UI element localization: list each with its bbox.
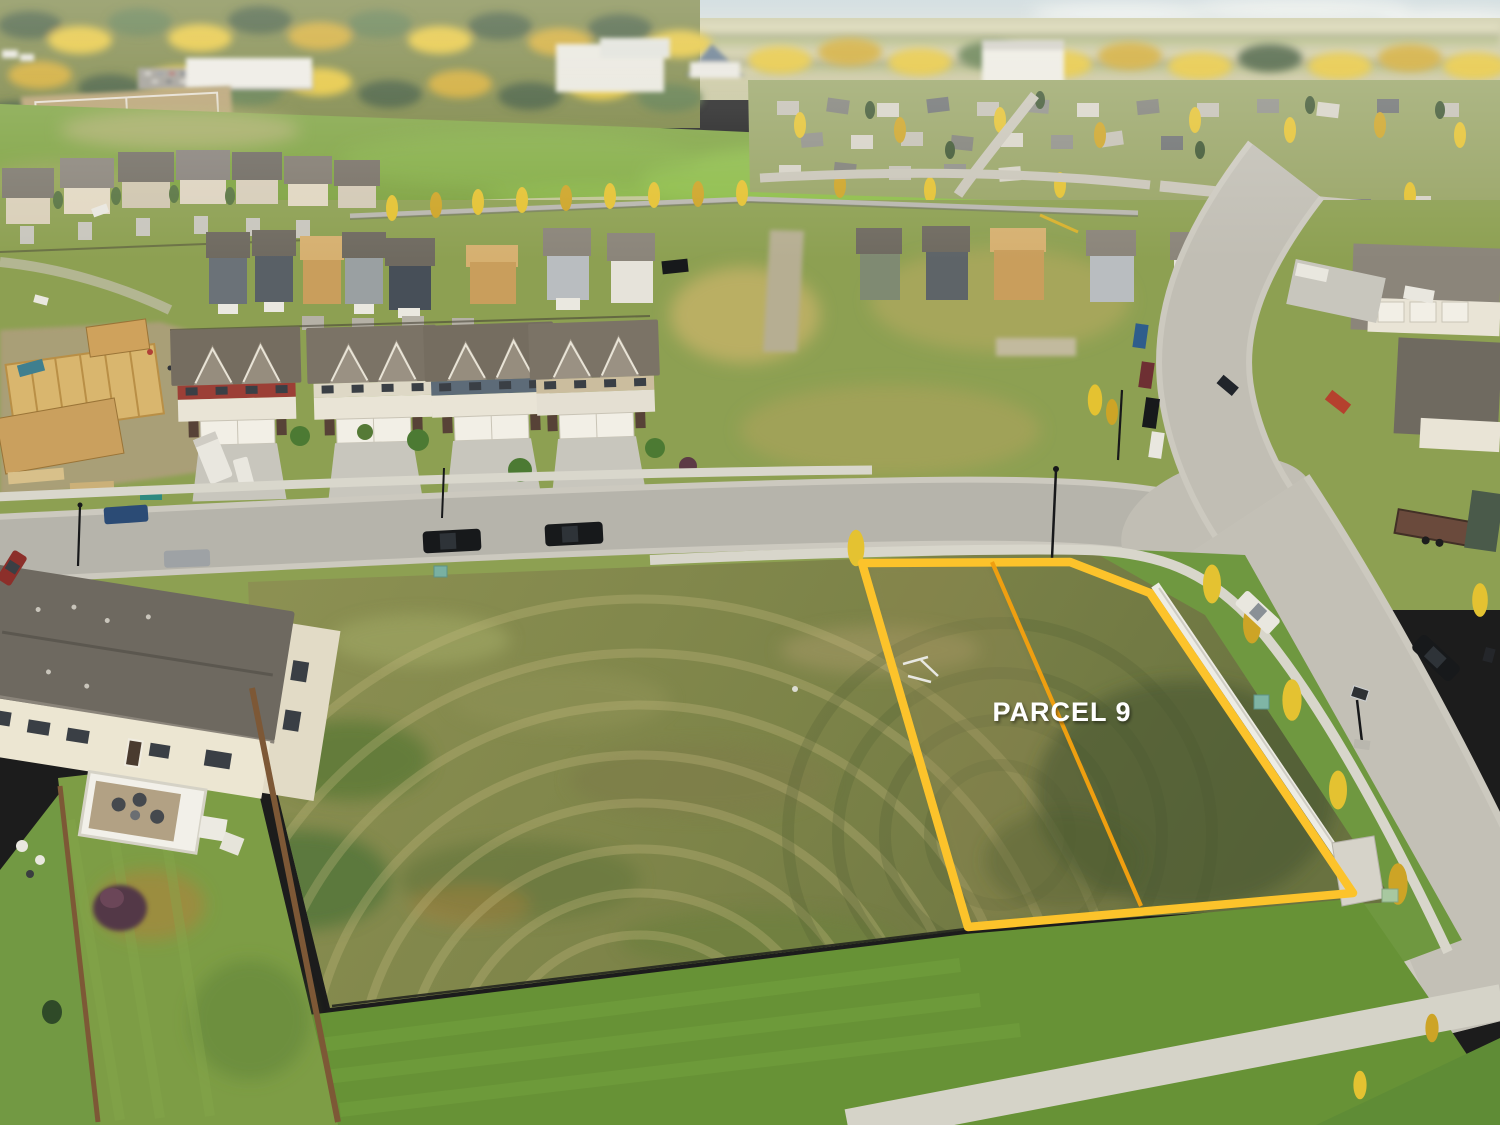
atmospheric-haze	[0, 0, 1500, 260]
utility-box	[1382, 889, 1398, 902]
trash-bins	[1482, 647, 1495, 663]
utility-box	[434, 566, 447, 577]
aerial-photo: PARCEL 9	[0, 0, 1500, 1125]
blue-pickup	[103, 504, 148, 524]
parked-truck	[661, 259, 688, 275]
utility-box	[1254, 695, 1269, 709]
black-pickup	[544, 521, 603, 546]
parcel-label: PARCEL 9	[992, 697, 1131, 727]
black-pickup	[422, 528, 481, 553]
gray-pickup	[164, 549, 211, 568]
